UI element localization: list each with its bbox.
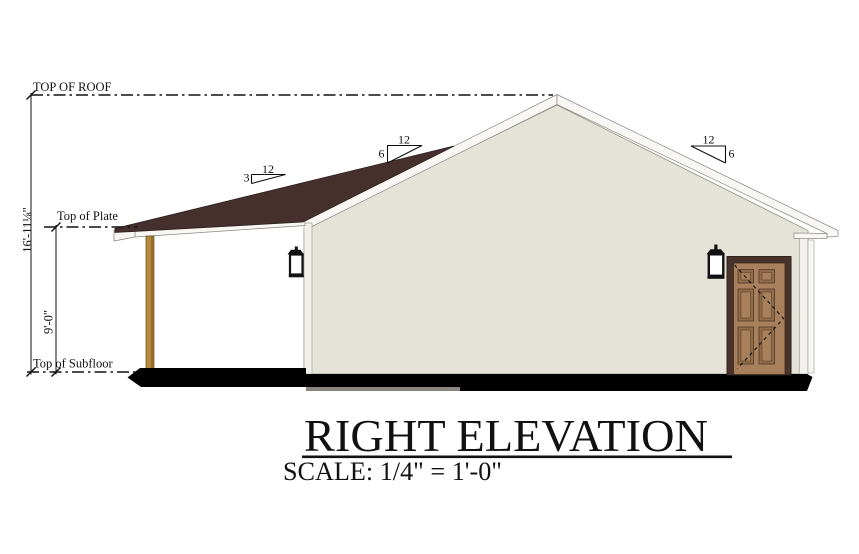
pitch-rise-label: 3 <box>244 171 250 185</box>
building <box>114 95 838 392</box>
pitch-rise-label: 6 <box>379 147 385 161</box>
wall-lantern-left <box>288 247 305 278</box>
right-eave-soffit <box>794 233 827 239</box>
elevation-sheet: TOP OF ROOF Top of Plate Top of Subfloor… <box>0 0 859 554</box>
top-of-subfloor-label: Top of Subfloor <box>33 357 114 371</box>
top-of-roof-label: TOP OF ROOF <box>33 80 112 94</box>
right-elevation-drawing: TOP OF ROOF Top of Plate Top of Subfloor… <box>0 0 859 554</box>
entry-door <box>727 257 791 376</box>
pitch-run-label: 12 <box>398 133 410 147</box>
top-of-plate-label: Top of Plate <box>57 209 118 223</box>
lantern-base <box>708 276 725 279</box>
drawing-scale: SCALE: 1/4" = 1'-0" <box>283 457 502 486</box>
pitch-run-label: 12 <box>703 133 715 147</box>
footing-strip <box>306 387 461 392</box>
lantern-body <box>290 255 303 275</box>
pitch-run-label: 12 <box>262 162 274 176</box>
pitch-rise-label: 6 <box>729 147 735 161</box>
lantern-body <box>709 254 724 275</box>
porch-post <box>146 236 154 370</box>
right-corner-return <box>808 240 814 373</box>
wall-height-dim-text: 9'-0" <box>42 310 56 334</box>
right-corner-trim <box>800 239 809 375</box>
drawing-title: RIGHT ELEVATION <box>304 410 708 461</box>
pitch-indicator-main-right-6-12: 12 6 <box>691 133 735 164</box>
annotations: TOP OF ROOF Top of Plate Top of Subfloor… <box>21 80 119 371</box>
lantern-base <box>289 275 304 278</box>
lantern-finial <box>714 245 717 250</box>
overall-height-dim-text: 16'-11⅛" <box>21 207 35 252</box>
pitch-indicator-porch-3-12: 12 3 <box>244 162 286 185</box>
left-corner-trim <box>304 223 312 374</box>
title-block: RIGHT ELEVATION SCALE: 1/4" = 1'-0" <box>283 410 732 486</box>
